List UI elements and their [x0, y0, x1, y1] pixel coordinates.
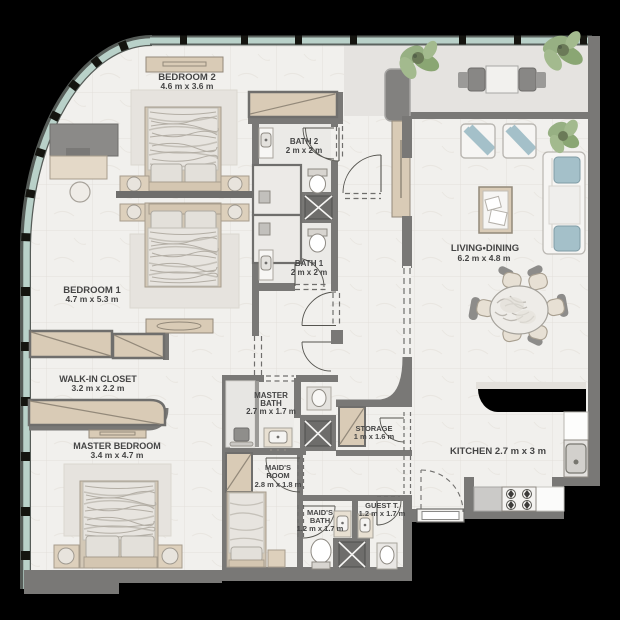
svg-text:KITCHEN 2.7 m x 3 m: KITCHEN 2.7 m x 3 m: [450, 446, 546, 457]
svg-text:2 m x 2 m: 2 m x 2 m: [291, 268, 327, 277]
svg-text:3.4 m x 4.7 m: 3.4 m x 4.7 m: [91, 450, 144, 460]
svg-text:6.2 m x 4.8 m: 6.2 m x 4.8 m: [458, 253, 511, 263]
svg-text:3.2 m x 2.2 m: 3.2 m x 2.2 m: [72, 383, 125, 393]
svg-text:1.2 m x 1.7 m: 1.2 m x 1.7 m: [297, 524, 344, 533]
svg-text:BATH 2: BATH 2: [290, 137, 319, 146]
svg-text:2 m x 2 m: 2 m x 2 m: [286, 146, 322, 155]
svg-text:1.2 m x 1.7 m: 1.2 m x 1.7 m: [359, 509, 406, 518]
svg-text:ROOM: ROOM: [266, 471, 289, 480]
svg-text:2.7 m x 1.7 m: 2.7 m x 1.7 m: [246, 407, 296, 416]
svg-text:4.7 m x 5.3 m: 4.7 m x 5.3 m: [66, 294, 119, 304]
svg-text:BATH 1: BATH 1: [295, 259, 324, 268]
svg-text:4.6 m x 3.6 m: 4.6 m x 3.6 m: [161, 81, 214, 91]
svg-text:1 m x 1.6 m: 1 m x 1.6 m: [354, 432, 395, 441]
svg-text:2.8 m x 1.8 m: 2.8 m x 1.8 m: [255, 480, 302, 489]
